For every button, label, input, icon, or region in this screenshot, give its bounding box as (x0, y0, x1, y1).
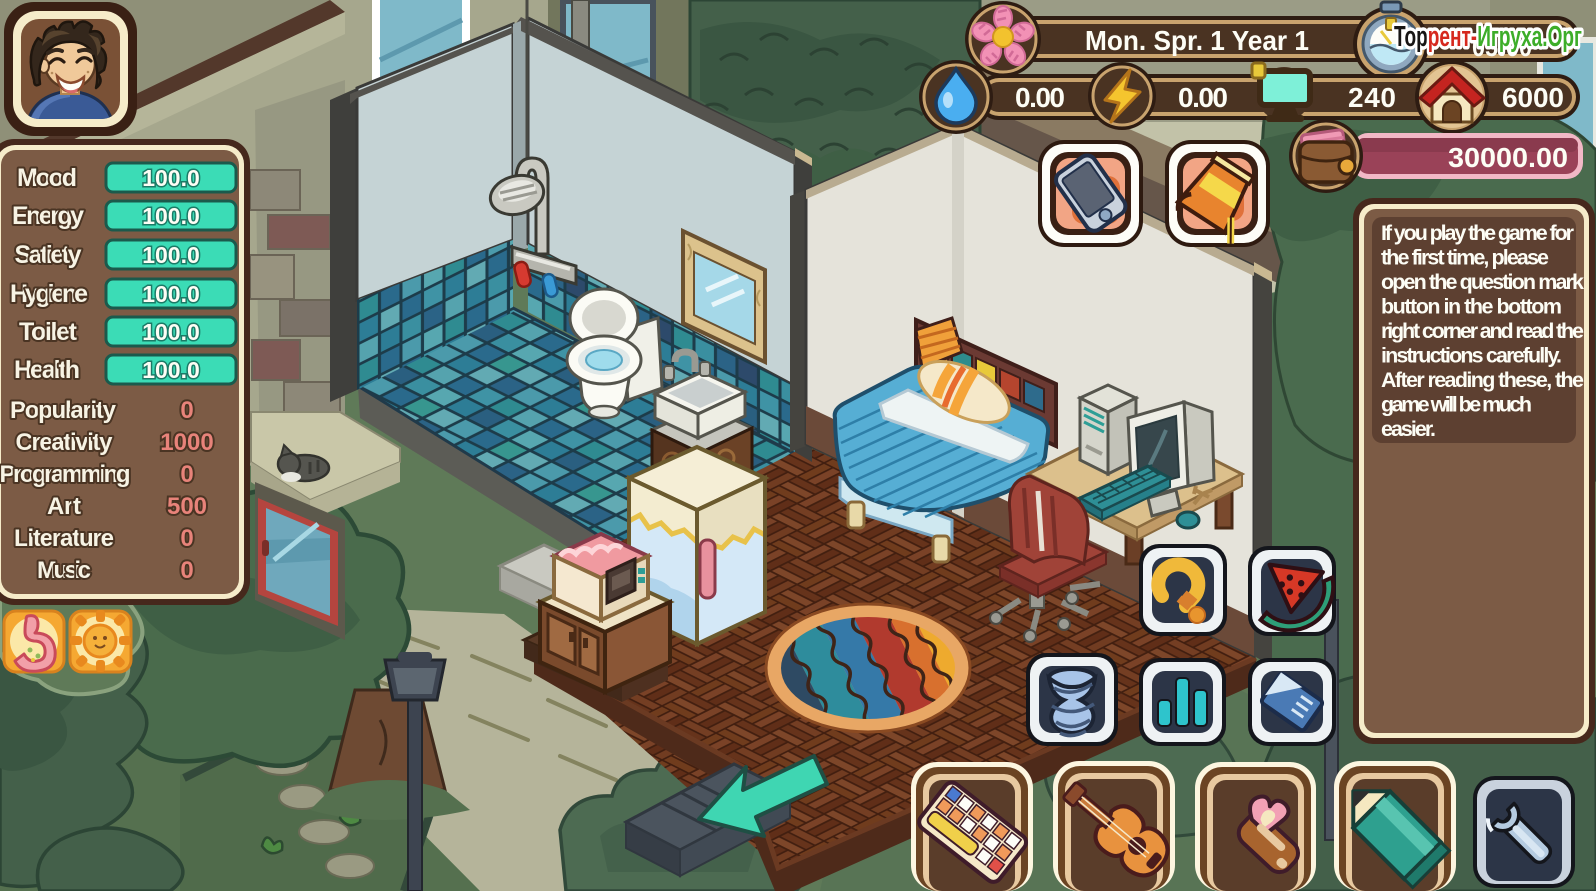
svg-text:right corner and read the: right corner and read the (1381, 319, 1584, 343)
svg-text:1000: 1000 (160, 429, 213, 456)
svg-text:Programming: Programming (0, 461, 131, 488)
svg-text:30000.00: 30000.00 (1448, 142, 1568, 173)
svg-text:100.0: 100.0 (142, 357, 200, 383)
svg-text:the first time, please: the first time, please (1381, 246, 1549, 270)
svg-text:100.0: 100.0 (142, 203, 200, 229)
svg-text:0: 0 (180, 397, 193, 424)
svg-text:Creativity: Creativity (16, 429, 114, 456)
svg-text:500: 500 (167, 493, 207, 520)
svg-text:Popularity: Popularity (10, 397, 117, 424)
svg-text:100.0: 100.0 (142, 242, 200, 268)
svg-text:Toilet: Toilet (19, 318, 78, 346)
svg-text:Energy: Energy (12, 202, 84, 230)
svg-text:0: 0 (180, 461, 193, 488)
svg-text:Art: Art (47, 493, 81, 520)
svg-text:6000: 6000 (1502, 82, 1564, 113)
svg-text:0.00: 0.00 (1015, 82, 1065, 113)
svg-text:open the question mark: open the question mark (1381, 270, 1584, 294)
svg-text:easier.: easier. (1381, 417, 1436, 441)
svg-text:Satiety: Satiety (15, 241, 82, 269)
svg-text:100.0: 100.0 (142, 281, 200, 307)
svg-text:Health: Health (14, 356, 80, 384)
svg-text:0: 0 (180, 525, 193, 552)
svg-text:Mon. Spr. 1 Year 1: Mon. Spr. 1 Year 1 (1085, 25, 1309, 56)
svg-text:100.0: 100.0 (142, 319, 200, 345)
svg-text:game will be much: game will be much (1381, 393, 1532, 417)
svg-text:0: 0 (180, 557, 193, 584)
svg-text:If you play the game for: If you play the game for (1381, 221, 1575, 245)
svg-text:Торрент-Игруха.Орг: Торрент-Игруха.Орг (1394, 21, 1582, 53)
svg-text:0.00: 0.00 (1178, 82, 1228, 113)
svg-text:After reading these, the: After reading these, the (1381, 368, 1584, 392)
svg-text:instructions carefully.: instructions carefully. (1381, 344, 1562, 368)
svg-text:Mood: Mood (17, 164, 77, 192)
svg-text:240: 240 (1348, 82, 1396, 113)
svg-text:Music: Music (37, 557, 91, 584)
svg-text:button in the bottom: button in the bottom (1381, 295, 1562, 319)
svg-text:Hygiene: Hygiene (10, 280, 88, 308)
svg-text:100.0: 100.0 (142, 165, 200, 191)
svg-text:Literature: Literature (14, 525, 114, 552)
